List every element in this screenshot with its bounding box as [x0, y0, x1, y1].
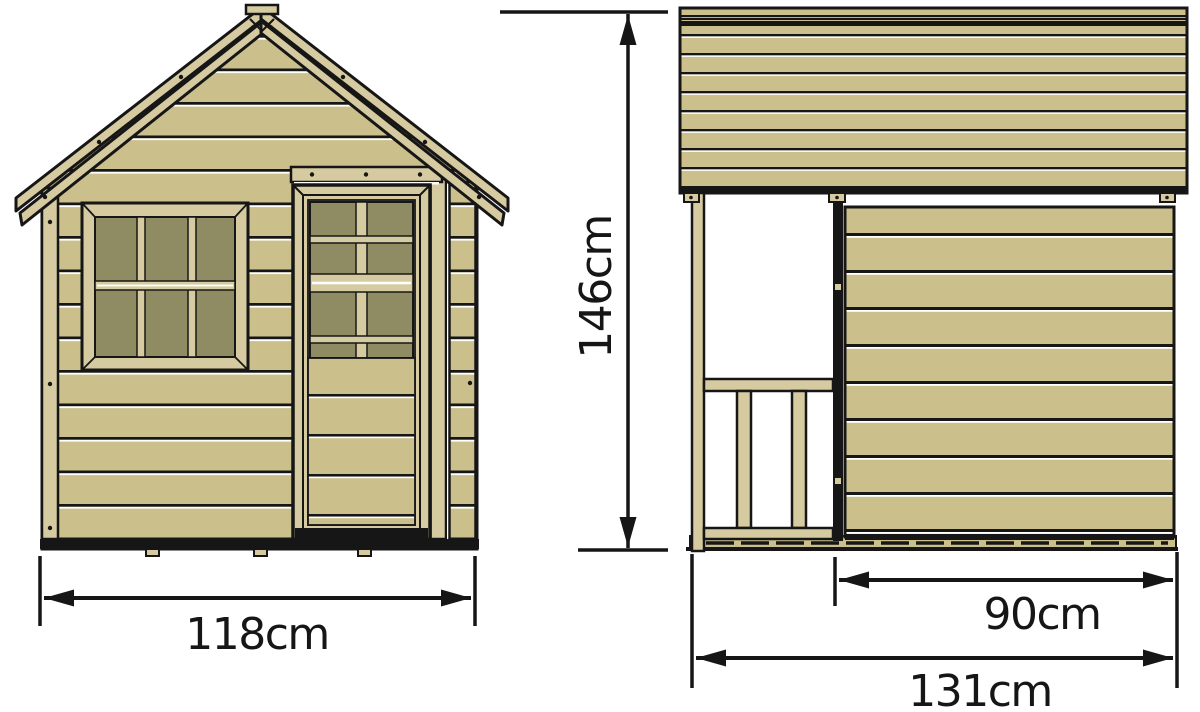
front-foot	[146, 549, 159, 556]
porch-post	[692, 193, 704, 551]
side-total-depth-label: 131cm	[908, 666, 1052, 712]
dimension-front-width: 118cm	[40, 556, 475, 660]
front-left-corner-trim	[42, 188, 58, 539]
porch-baluster	[737, 391, 751, 528]
side-roof-panel	[680, 8, 1187, 193]
porch-top-rail	[704, 379, 833, 391]
front-foot	[358, 549, 371, 556]
side-view	[680, 8, 1187, 551]
dimension-height: 146cm	[500, 12, 668, 550]
front-width-label: 118cm	[185, 609, 329, 660]
side-wall-front-edge	[833, 193, 843, 541]
arrowhead-right-icon	[441, 590, 471, 607]
porch-bottom-rail	[704, 528, 833, 539]
front-view	[16, 5, 508, 556]
door-muntin	[310, 236, 413, 243]
arrowhead-left-icon	[44, 590, 74, 607]
side-porch	[684, 193, 833, 551]
door-threshold	[295, 528, 428, 541]
front-window	[82, 203, 248, 370]
front-right-corner-board	[431, 178, 447, 539]
ridge-cap	[246, 5, 278, 14]
playhouse-dimension-diagram: 118cm 146cm 90cm 131cm	[0, 0, 1200, 712]
arrowhead-down-icon	[620, 517, 637, 547]
dimension-side-total-depth: 131cm	[692, 554, 1173, 712]
arrowhead-left-icon	[696, 650, 726, 667]
side-wall-depth-label: 90cm	[983, 589, 1100, 640]
side-wall	[829, 193, 1175, 541]
arrowhead-left-icon	[839, 572, 869, 589]
front-foot	[254, 549, 267, 556]
side-roof	[680, 8, 1187, 193]
arrowhead-up-icon	[620, 15, 637, 45]
front-door	[291, 167, 442, 541]
side-wall-planks	[845, 207, 1174, 537]
arrowhead-right-icon	[1143, 650, 1173, 667]
height-label: 146cm	[571, 215, 622, 359]
front-right-corner-stack	[450, 182, 476, 539]
diagram-canvas: 118cm 146cm 90cm 131cm	[0, 0, 1200, 712]
door-muntin	[310, 336, 413, 343]
door-lower-panel	[308, 358, 415, 525]
arrowhead-right-icon	[1143, 572, 1173, 589]
porch-baluster	[792, 391, 806, 528]
